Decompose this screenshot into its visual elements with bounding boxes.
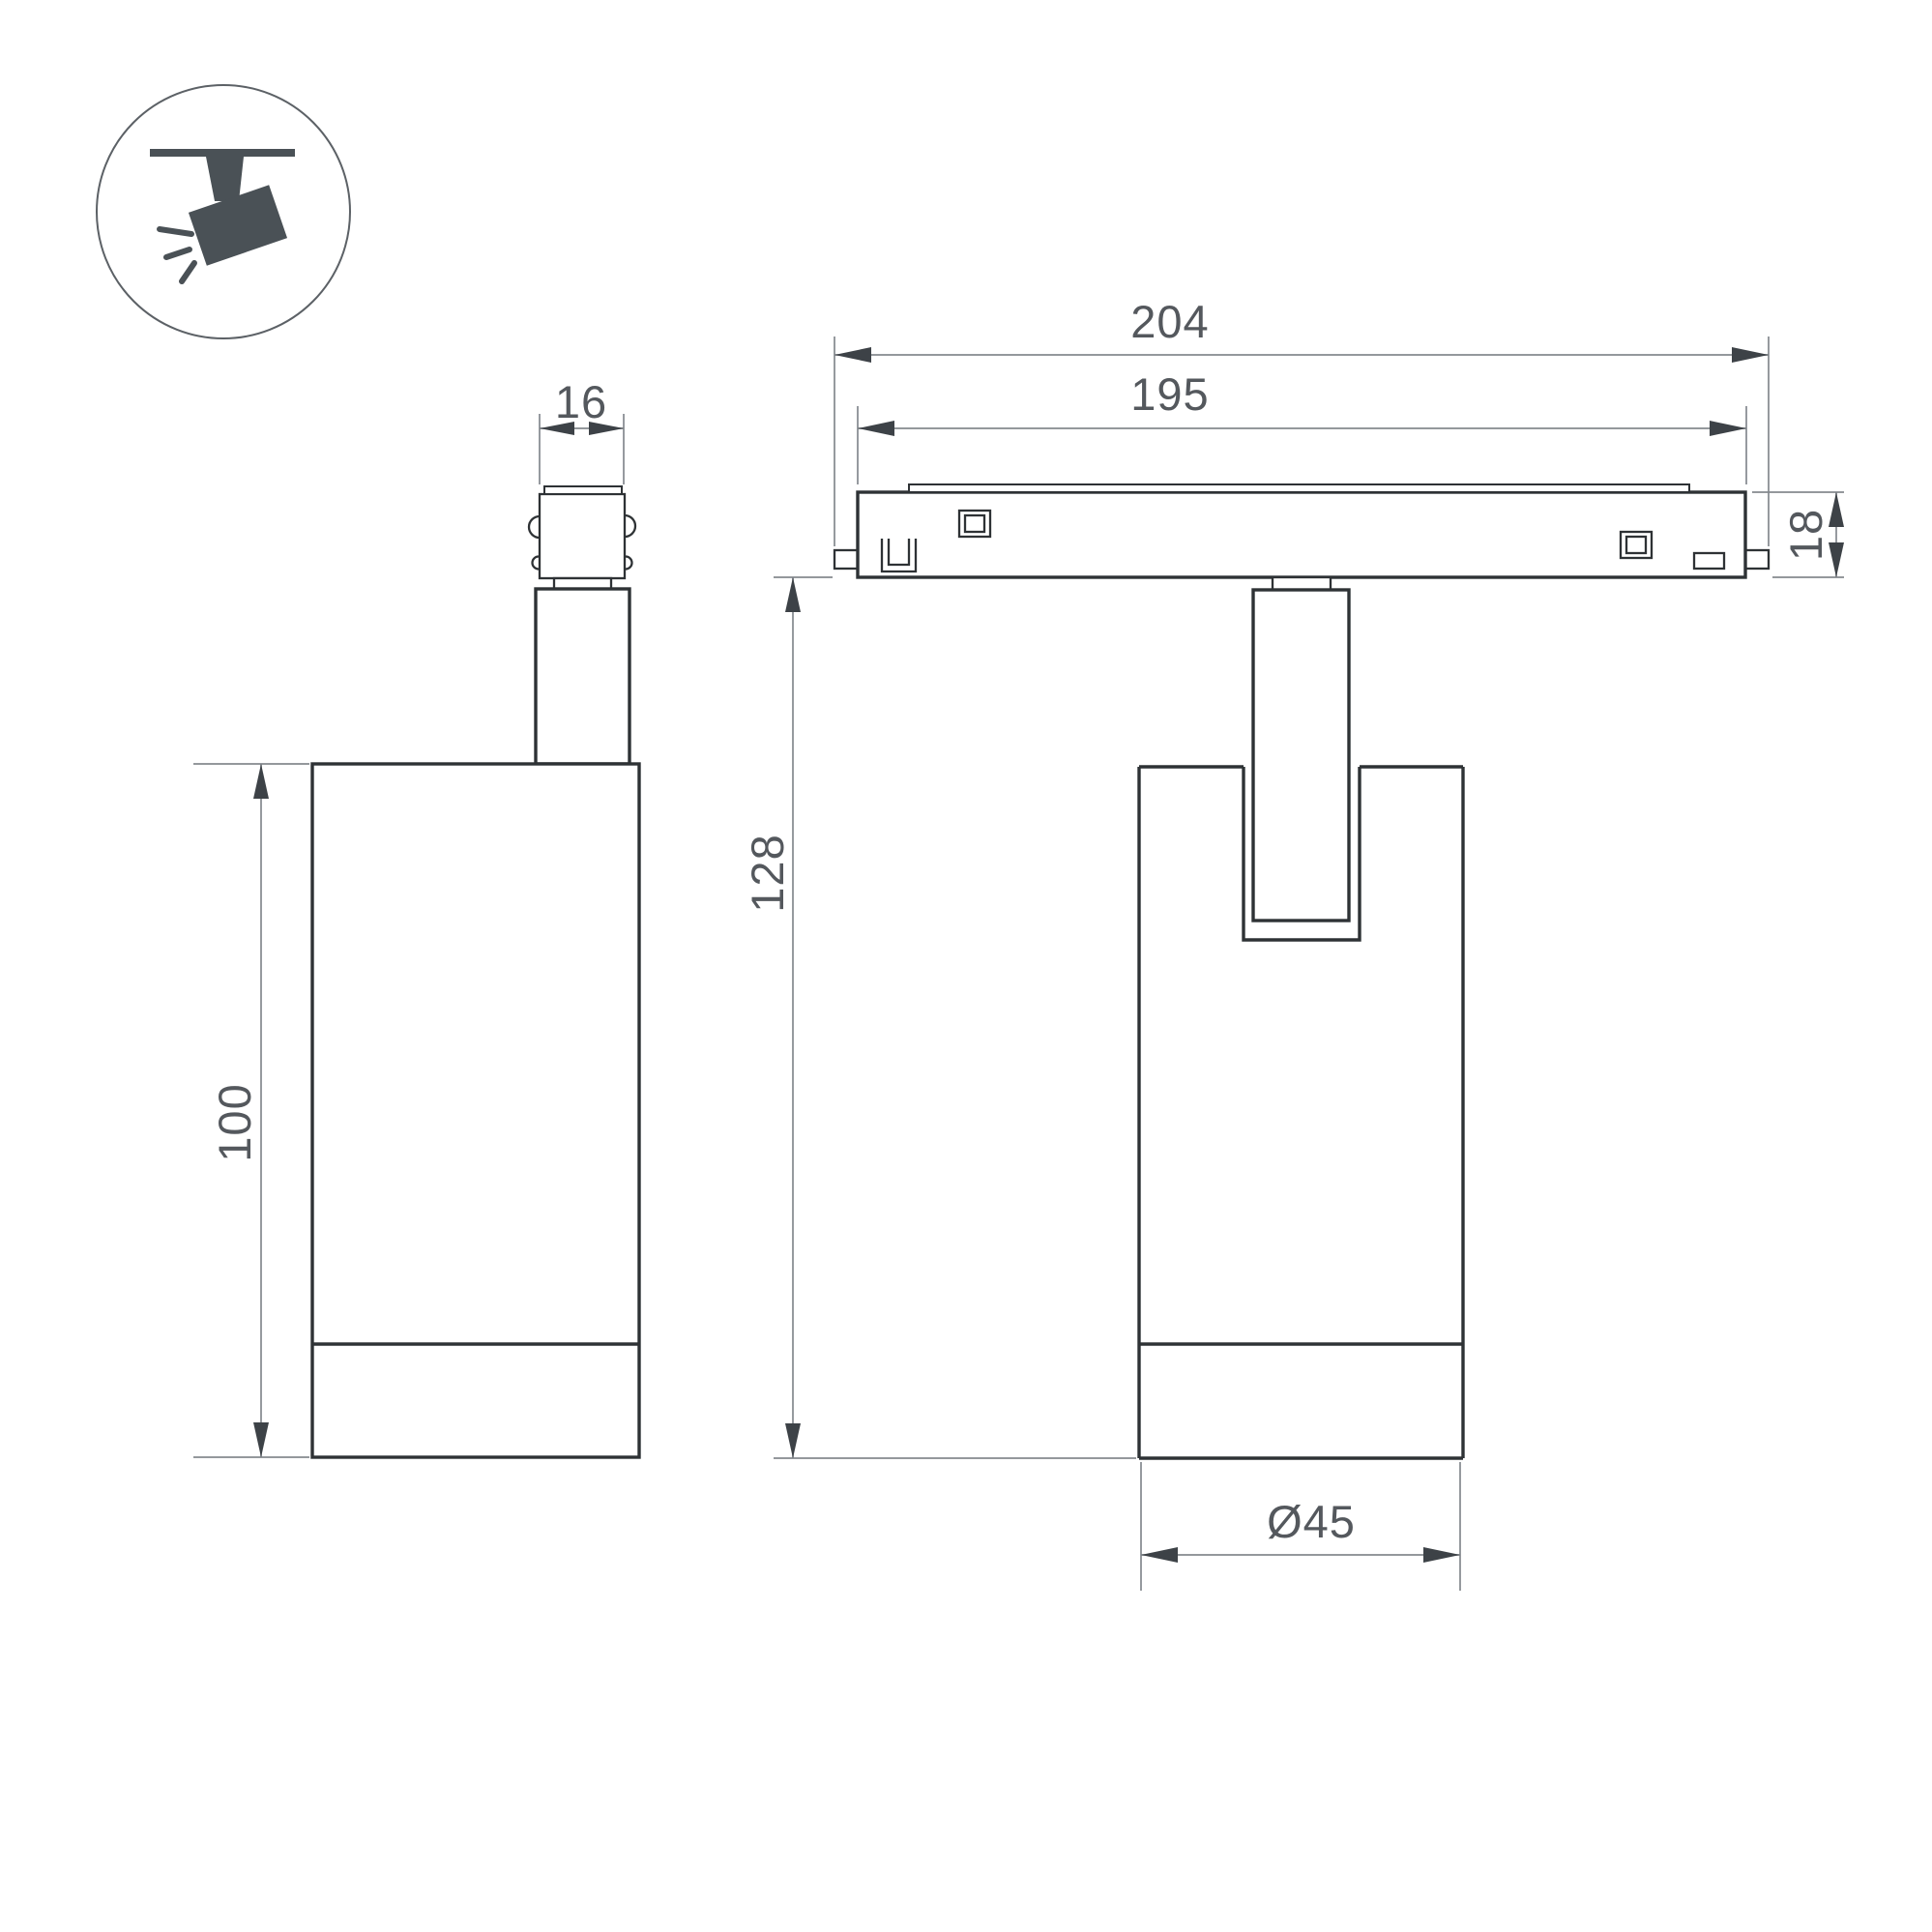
side-view-body [312,764,639,1457]
arrowhead [1423,1547,1460,1563]
front-view-stem [1253,590,1349,921]
arrowhead [858,421,894,436]
track-end-tab-left [834,550,858,569]
front-view [834,484,1769,1458]
drawing-canvas: 16 100 [0,0,1932,1932]
dimension-45: Ø45 [1141,1462,1460,1591]
icon-ceiling-bar [150,149,295,157]
dimension-128-label: 128 [742,834,793,912]
arrowhead [785,1423,801,1458]
track-end-tab-right [1745,550,1769,569]
arrowhead [1141,1547,1178,1563]
arrowhead [1710,421,1746,436]
side-view-stem [536,589,629,764]
dimension-100: 100 [193,764,309,1457]
side-view-connector-plate [544,486,622,494]
dimension-16-label: 16 [555,376,607,427]
arrowhead [834,347,871,363]
side-view-track-connector [540,494,625,578]
track-spotlight-icon [97,85,350,338]
arrowhead [1732,347,1769,363]
arrowhead [253,764,269,799]
technical-drawing: 16 100 [0,0,1932,1932]
arrowhead [253,1422,269,1457]
dimension-45-label: Ø45 [1267,1496,1356,1547]
dimension-100-label: 100 [209,1083,260,1161]
front-view-collar [1273,577,1331,590]
dimension-18-label: 18 [1780,509,1831,561]
dimension-204-label: 204 [1130,296,1209,347]
track-top-strip [909,484,1689,492]
side-view [312,486,639,1457]
dimension-16: 16 [540,376,624,484]
dimension-195-label: 195 [1130,368,1209,420]
arrowhead [785,577,801,612]
dimension-128: 128 [742,577,1136,1458]
dimension-195: 195 [858,368,1746,484]
